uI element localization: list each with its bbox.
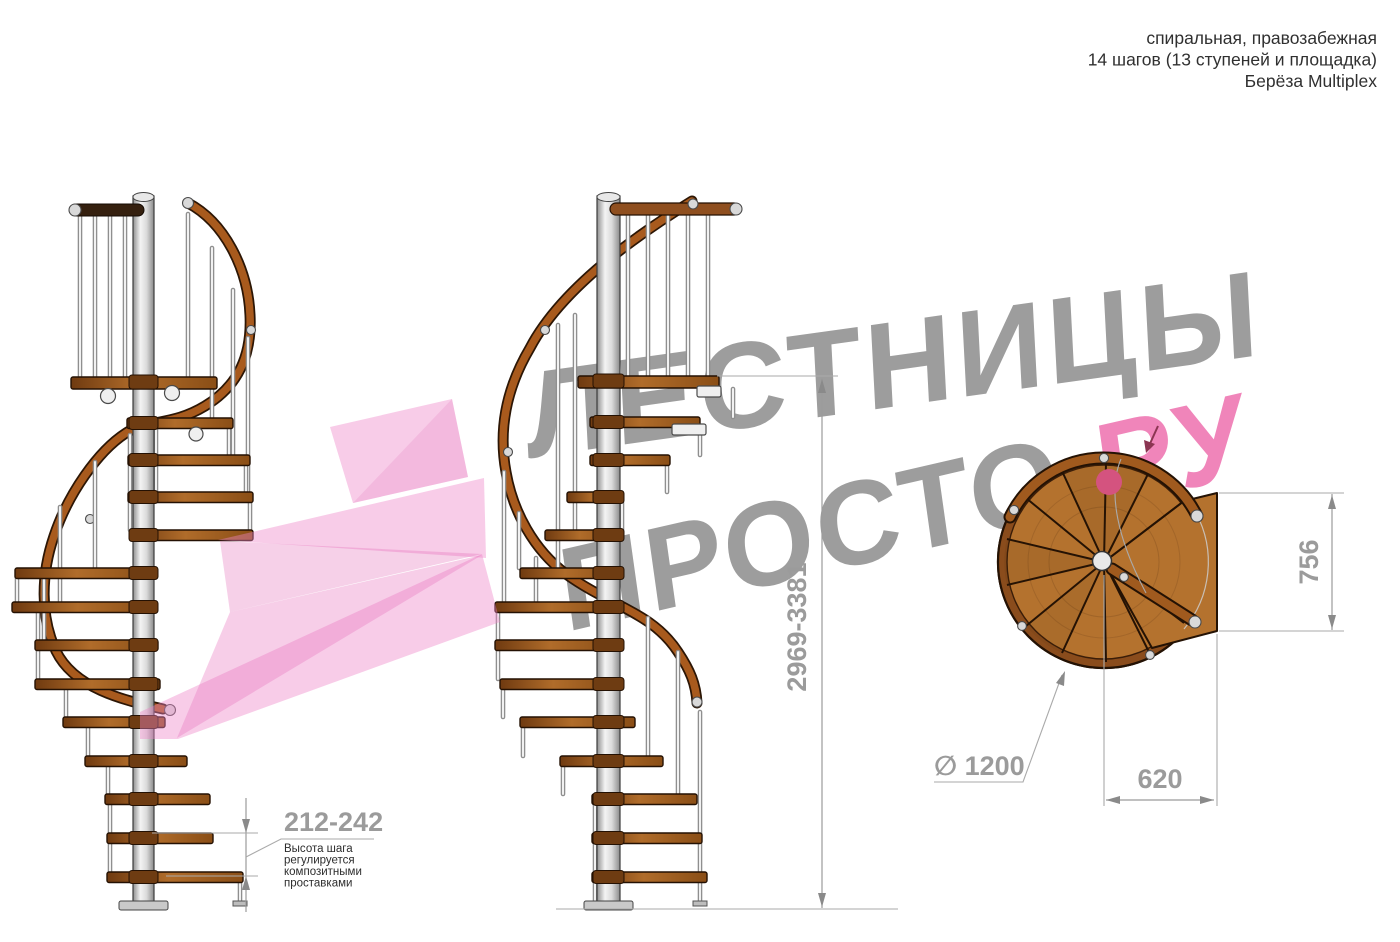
title-block: спиральная, правозабежная 14 шагов (13 с… [1088, 28, 1378, 91]
rail-joint-icon [1120, 573, 1129, 582]
staircase-drawing: ЛЕСТНИЦЫ ПРОСТО.РУ [0, 0, 1400, 942]
dimension-step-height: 212-242 Высота шага регулируется компози… [152, 798, 383, 912]
title-line-material: Берёза Multiplex [1245, 71, 1378, 91]
drawing-sheet: ЛЕСТНИЦЫ ПРОСТО.РУ [0, 0, 1400, 942]
rail-joint-icon [504, 448, 513, 457]
mount-plate-icon [101, 389, 116, 404]
diameter-label: ∅ 1200 [934, 751, 1025, 781]
step-note-line: Высота шага [284, 843, 353, 855]
rail-joint-icon [1099, 453, 1108, 462]
dimension-diameter: ∅ 1200 [934, 671, 1065, 782]
rim-joint-icon [1146, 651, 1155, 660]
rail-joint-icon [1009, 505, 1018, 514]
mount-plate-icon [165, 386, 180, 401]
handrail-bar [610, 203, 740, 215]
title-line-steps: 14 шагов (13 ступеней и площадка) [1088, 50, 1377, 70]
mount-plate-icon [189, 427, 203, 441]
dimension-platform-depth: 756 [1219, 493, 1344, 631]
wall-bracket-icon [697, 386, 721, 397]
center-pole-plan [1093, 552, 1112, 571]
logo-ribbon [140, 399, 500, 739]
title-line-type: спиральная, правозабежная [1146, 28, 1377, 48]
staircase-side-view-1 [12, 193, 256, 911]
watermark-period-dot [1096, 469, 1122, 495]
total-height-label: 2969-3381 [782, 562, 812, 691]
rail-cap-icon [183, 198, 194, 209]
step-note-line: композитными [284, 866, 362, 878]
rail-cap-icon [730, 203, 742, 215]
rim-joint-icon [1018, 622, 1027, 631]
rail-cap-icon [1189, 616, 1201, 628]
rail-joint-icon [247, 326, 256, 335]
rail-cap-icon [69, 204, 81, 216]
rail-joint-icon [541, 326, 550, 335]
step-height-label: 212-242 [284, 807, 383, 837]
platform-depth-label: 756 [1294, 539, 1324, 584]
rail-cap-icon [692, 697, 702, 707]
step-note-line: регулируется [284, 855, 355, 867]
wall-bracket-icon [672, 424, 706, 435]
rail-joint-icon [688, 199, 698, 209]
platform-width-label: 620 [1137, 764, 1182, 794]
rail-cap-icon [1191, 510, 1203, 522]
base-flange [119, 901, 168, 910]
step-note-line: проставками [284, 878, 352, 890]
